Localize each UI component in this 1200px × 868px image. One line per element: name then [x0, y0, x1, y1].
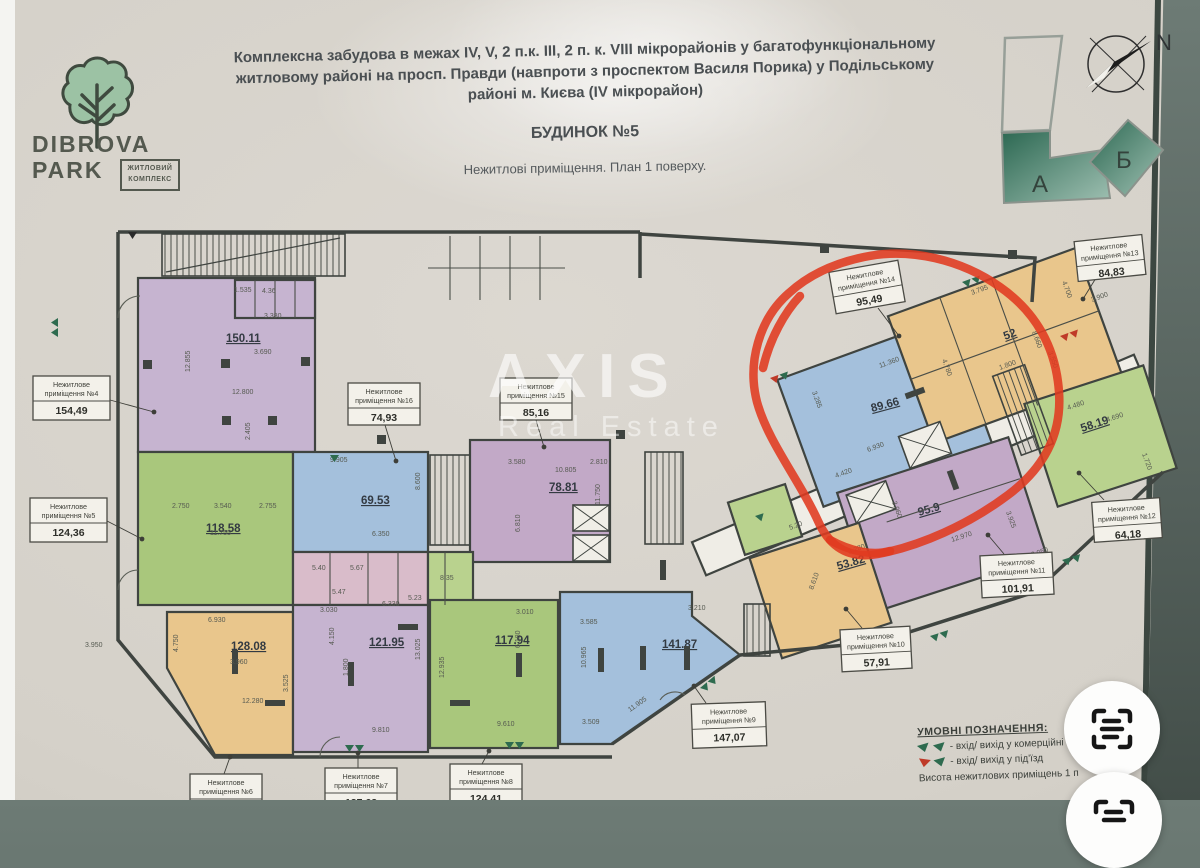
- label-leader-dot: [542, 445, 547, 450]
- room-area-premise-9: 141.87: [662, 639, 697, 651]
- dimension-label: 3.210: [688, 605, 706, 612]
- entrance-triangle-icon: [700, 682, 711, 693]
- label-leader-dot: [228, 755, 233, 760]
- legend-item-commercial-label: - вхід/ вихід у комерційні: [950, 737, 1064, 752]
- premise-area-value: 74,93: [371, 412, 397, 424]
- column-bar: [516, 653, 522, 677]
- dimension-label: 12.280: [242, 698, 264, 705]
- entrance-mark: [930, 630, 950, 643]
- dimension-label: 11.755: [210, 530, 231, 537]
- dimension-label: 10.805: [555, 467, 577, 474]
- premise-label-line-1: Нежитлове: [50, 502, 87, 511]
- scan-text-icon: [1090, 796, 1138, 844]
- entrance-commercial-icon: [933, 742, 947, 753]
- premise-label-line-1: Нежитлове: [53, 380, 90, 389]
- stair-core: [430, 455, 470, 545]
- premise-area-value: 85,16: [523, 407, 549, 419]
- premise-label-box: Нежитловеприміщення №1674,93: [348, 383, 420, 425]
- column: [820, 244, 829, 253]
- label-leader-dot: [152, 410, 157, 415]
- premise-label-box: Нежитловеприміщення №1585,16: [500, 378, 572, 420]
- room-area-premise-7: 121.95: [369, 637, 405, 649]
- premise-area-value: 124,41: [470, 793, 502, 800]
- entrance-triangle-icon: [940, 630, 951, 639]
- column: [616, 430, 625, 439]
- column-bar: [398, 624, 418, 630]
- door-swing-arc: [118, 570, 138, 590]
- dimension-label: 4.150: [329, 627, 336, 645]
- column: [377, 435, 386, 444]
- premise-label-box: Нежитловеприміщення №1057,91: [840, 626, 912, 672]
- premise-label-line-2: приміщення №5: [42, 511, 96, 520]
- dimension-label: 1.535: [234, 287, 252, 294]
- column: [268, 416, 277, 425]
- entrance-lobby-icon: [933, 757, 947, 768]
- premise-area-value: 57,91: [863, 656, 890, 669]
- label-leader-dot: [1077, 471, 1082, 476]
- dimension-label: 12.855: [185, 350, 192, 372]
- room-area-premise-16: 69.53: [361, 495, 390, 507]
- red-highlight-marker: [763, 296, 800, 368]
- dimension-label: 3.690: [254, 349, 272, 356]
- dimension-label: 5.40: [312, 565, 326, 572]
- dimension-label: 3.525: [283, 674, 290, 692]
- dimension-label: 1.800: [343, 658, 350, 676]
- dimension-label: 5.67: [350, 565, 364, 572]
- floor-plan-drawing: 150.11118.5869.5378.81128.08121.95117.94…: [0, 0, 1200, 800]
- premise-area-value: 154,49: [55, 405, 87, 417]
- premise-label-line-2: приміщення №15: [507, 391, 565, 400]
- dimension-label: 2.810: [590, 459, 608, 466]
- dimension-label: 9.610: [497, 721, 515, 728]
- premise-label-box: Нежитловеприміщення №11101,91: [980, 552, 1054, 598]
- dimension-label: 3.509: [582, 719, 600, 726]
- label-leader-line: [107, 521, 142, 539]
- premise-area-value: 64,18: [1115, 528, 1142, 542]
- entrance-mark: [128, 232, 137, 239]
- entrance-lobby-icon: [918, 758, 931, 768]
- dimension-label: 5.23: [408, 595, 422, 602]
- entrance-triangle-icon: [930, 633, 941, 642]
- dimension-label: 6.810: [515, 514, 522, 532]
- entrance-mark: [51, 318, 58, 337]
- label-leader-dot: [692, 684, 697, 689]
- premise-label-line-1: Нежитлове: [207, 778, 244, 787]
- dimension-label: 12.935: [439, 656, 446, 678]
- column-bar: [265, 700, 285, 706]
- dimension-label: 2.755: [259, 503, 277, 510]
- dimension-label: 6.930: [208, 617, 226, 624]
- dimension-label: 8.35: [440, 575, 454, 582]
- dimension-label: 3.585: [580, 619, 598, 626]
- scan-text-icon: [1088, 705, 1136, 753]
- dimension-label: 3.010: [516, 609, 534, 616]
- premise-label-box: Нежитловеприміщення №1495,49: [829, 260, 905, 314]
- dimension-label: 9.810: [372, 727, 390, 734]
- column-bar: [598, 648, 604, 672]
- premise-label-box: Нежитловеприміщення №5124,36: [30, 498, 107, 542]
- legend-item-entrance-label: - вхід/ вихід у під'їзд: [950, 753, 1043, 767]
- stair-core: [645, 452, 683, 544]
- dimension-label: 12.800: [232, 389, 254, 396]
- scan-text-button-secondary[interactable]: [1066, 772, 1162, 868]
- stair-core: [744, 604, 770, 656]
- label-leader-dot: [394, 459, 399, 464]
- premise-label-line-1: Нежитлове: [342, 772, 379, 781]
- label-leader-dot: [487, 749, 492, 754]
- photo-of-floor-plan: Комплексна забудова в межах IV, V, 2 п.к…: [0, 0, 1200, 800]
- premise-area-value: 124,36: [52, 527, 84, 539]
- dimension-label: 3.380: [264, 313, 282, 320]
- premise-label-box: Нежитловеприміщення №1264,18: [1092, 498, 1163, 544]
- scan-text-button[interactable]: [1064, 681, 1160, 777]
- column-bar: [660, 560, 666, 580]
- premise-label-line-1: Нежитлове: [467, 768, 504, 777]
- arrow-icon: [128, 232, 137, 239]
- premise-label-line-2: приміщення №9: [702, 715, 756, 726]
- dimension-label: 2.750: [172, 503, 190, 510]
- room-premise-6: [167, 612, 293, 755]
- dimension-label: 11.750: [595, 484, 602, 505]
- room-area-premise-15: 78.81: [549, 482, 578, 494]
- premise-label-box: Нежитловеприміщення №6: [190, 774, 262, 800]
- dimension-label: 13.025: [415, 638, 422, 660]
- label-leader-dot: [1081, 297, 1086, 302]
- entrance-triangle-icon: [51, 328, 58, 337]
- dimension-label: 8.600: [415, 472, 422, 490]
- premise-label-box: Нежитловеприміщення №8124,41: [450, 764, 522, 800]
- premise-area-value: 84,83: [1098, 266, 1126, 281]
- column-bar: [684, 646, 690, 670]
- label-leader-dot: [844, 607, 849, 612]
- room-area-premise-8: 117.94: [495, 635, 530, 647]
- column: [221, 359, 230, 368]
- dimension-label: 4.750: [173, 634, 180, 652]
- column: [143, 360, 152, 369]
- label-leader-dot: [140, 537, 145, 542]
- premise-label-line-2: приміщення №6: [199, 787, 253, 796]
- dimension-label: 3.960: [230, 659, 248, 666]
- dimension-label: 3.580: [508, 459, 526, 466]
- column: [1008, 250, 1017, 259]
- premise-label-box: Нежитловеприміщення №4154,49: [33, 376, 110, 420]
- room-premise-8: [430, 600, 558, 748]
- entrance-triangle-icon: [51, 318, 58, 327]
- room-area-premise-4: 150.11: [226, 333, 261, 345]
- dimension-label: 2.405: [245, 422, 252, 440]
- premise-label-line-2: приміщення №4: [45, 389, 99, 398]
- column: [301, 357, 310, 366]
- entrance-commercial-icon: [917, 742, 931, 753]
- label-leader-line: [224, 757, 230, 774]
- photo-left-strip: [0, 0, 15, 800]
- column-bar: [640, 646, 646, 670]
- dimension-label: 3.950: [85, 642, 103, 649]
- label-leader-dot: [986, 533, 991, 538]
- premise-label-line-2: приміщення №16: [355, 396, 413, 405]
- dimension-label: 5.47: [332, 589, 346, 596]
- dimension-label: 6.180: [515, 630, 522, 648]
- column-bar: [450, 700, 470, 706]
- label-leader-dot: [356, 751, 361, 756]
- dimension-label: 4.36: [262, 288, 276, 295]
- dimension-label: 10.965: [581, 646, 588, 668]
- premise-label-box: Нежитловеприміщення №7127,62: [325, 768, 397, 800]
- premise-area-value: 101,91: [1001, 582, 1034, 596]
- door-swing-arc: [118, 296, 140, 318]
- premise-label-line-1: Нежитлове: [517, 382, 554, 391]
- premise-label-line-2: приміщення №7: [334, 781, 388, 790]
- premise-label-line-2: приміщення №8: [459, 777, 513, 786]
- premise-label-box: Нежитловеприміщення №1384,83: [1074, 235, 1146, 283]
- column: [222, 416, 231, 425]
- premise-label-line-1: Нежитлове: [365, 387, 402, 396]
- dimension-label: 3.540: [214, 503, 232, 510]
- premise-label-box: Нежитловеприміщення №9147,07: [691, 702, 766, 749]
- dimension-label: 6.330: [382, 601, 400, 608]
- premise-area-value: 147,07: [713, 731, 746, 744]
- label-leader-dot: [897, 334, 902, 339]
- dimension-label: 6.350: [372, 531, 390, 538]
- dimension-label: 3.030: [320, 607, 338, 614]
